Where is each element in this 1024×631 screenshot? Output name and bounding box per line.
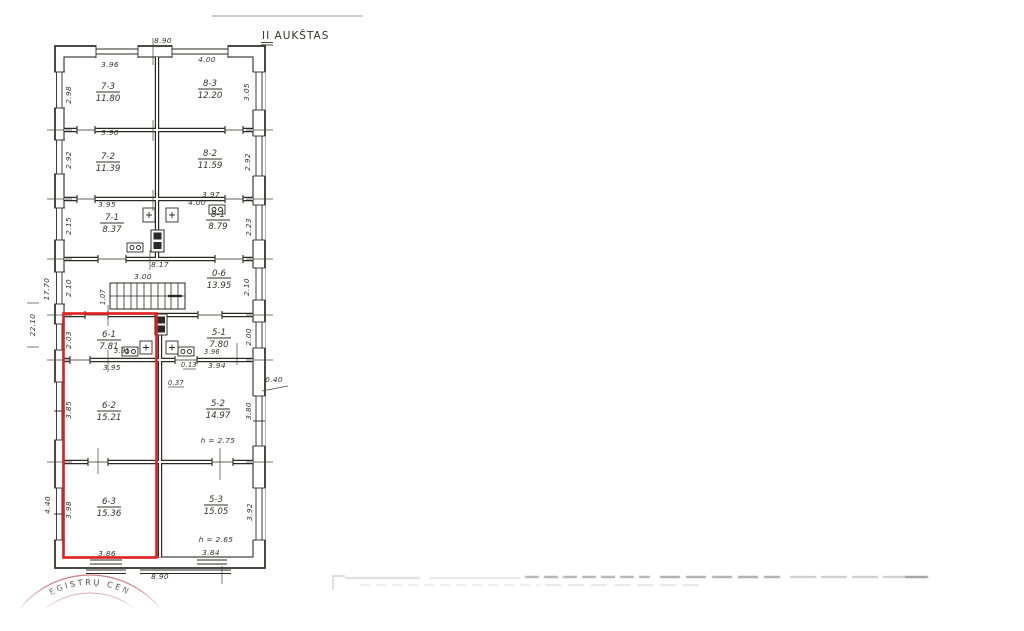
svg-text:2.98: 2.98 [64, 86, 73, 104]
room-labels: 7-311.80 8-312.20 7-211.39 8-211.59 7-18… [96, 79, 232, 519]
svg-text:3.96: 3.96 [101, 60, 119, 69]
svg-text:11.59: 11.59 [198, 161, 223, 171]
svg-text:15.36: 15.36 [97, 509, 122, 519]
room-label: 7-18.37 [100, 213, 124, 235]
room-label: 6-215.21 [97, 401, 122, 423]
svg-text:3.96: 3.96 [204, 348, 220, 356]
svg-text:4.40: 4.40 [43, 496, 52, 514]
svg-text:2.10: 2.10 [242, 278, 251, 296]
dim-bottom-width: 8.90 [151, 572, 169, 581]
interior-walls [64, 57, 253, 557]
svg-text:8.79: 8.79 [208, 222, 227, 232]
svg-text:5-2: 5-2 [211, 399, 225, 409]
svg-text:7-3: 7-3 [101, 82, 115, 92]
scanned-floor-plan-page: EGISTRŲ CEN [0, 0, 1024, 631]
dim-overall-left: 22.10 [28, 314, 37, 337]
ceiling-height-note: h = 2.75 [201, 436, 235, 445]
room-label: 7-311.80 [96, 82, 121, 104]
room-label: 8-18.79 [206, 210, 230, 232]
illegible-scan-text [333, 576, 928, 590]
svg-text:3.90: 3.90 [101, 128, 119, 137]
svg-text:13.95: 13.95 [207, 281, 232, 291]
svg-text:8-3: 8-3 [203, 79, 217, 89]
svg-text:11.80: 11.80 [96, 94, 121, 104]
room-label: 8-312.20 [198, 79, 223, 101]
dim-top-width: 8.90 [154, 36, 172, 45]
svg-text:2.00: 2.00 [244, 328, 253, 346]
floor-title: II AUKŠTAS [262, 29, 329, 42]
svg-text:2.92: 2.92 [243, 153, 252, 171]
svg-text:17.70: 17.70 [42, 278, 51, 301]
svg-text:2.03: 2.03 [64, 331, 73, 349]
svg-text:8-2: 8-2 [203, 149, 217, 159]
window-openings-right [253, 72, 266, 540]
svg-text:3.95: 3.95 [103, 363, 121, 372]
svg-text:12.20: 12.20 [198, 91, 223, 101]
registry-stamp: EGISTRŲ CEN [0, 575, 210, 631]
svg-text:6-2: 6-2 [102, 401, 116, 411]
ceiling-height-note: h = 2.65 [199, 535, 233, 544]
svg-text:8-1: 8-1 [211, 210, 225, 220]
svg-text:1.07: 1.07 [99, 289, 107, 305]
svg-text:4.00: 4.00 [198, 55, 216, 64]
svg-text:2.10: 2.10 [64, 279, 73, 297]
svg-text:7-1: 7-1 [105, 213, 119, 223]
svg-text:15.05: 15.05 [204, 507, 229, 517]
svg-text:3.84: 3.84 [202, 548, 220, 557]
svg-text:3.85: 3.85 [64, 401, 73, 419]
svg-text:8.17: 8.17 [151, 260, 169, 269]
room-label: 7-211.39 [96, 152, 121, 174]
drawing-title: II AUKŠTAS [261, 29, 329, 45]
svg-text:3.91: 3.91 [114, 347, 130, 355]
svg-text:3.95: 3.95 [98, 200, 116, 209]
staircase [110, 283, 185, 309]
room-label: 8-211.59 [198, 149, 223, 171]
svg-text:3.80: 3.80 [244, 402, 253, 420]
svg-text:6-1: 6-1 [102, 330, 116, 340]
svg-text:7-2: 7-2 [101, 152, 115, 162]
svg-text:3.98: 3.98 [64, 501, 73, 519]
svg-text:2.92: 2.92 [64, 151, 73, 169]
room-label: 5-17.80 [207, 328, 231, 350]
svg-text:5-3: 5-3 [209, 495, 223, 505]
room-label: 5-214.97 [206, 399, 231, 421]
room-label: 6-315.36 [97, 497, 122, 519]
svg-text:2.15: 2.15 [64, 217, 73, 235]
svg-text:0.13: 0.13 [181, 361, 197, 369]
svg-text:3.86: 3.86 [98, 549, 116, 558]
svg-text:3.00: 3.00 [134, 272, 152, 281]
svg-text:5-1: 5-1 [212, 328, 226, 338]
dim-right-offset: 0.40 [265, 375, 283, 384]
svg-text:8.37: 8.37 [102, 225, 122, 235]
svg-text:14.97: 14.97 [206, 411, 231, 421]
svg-text:3.05: 3.05 [242, 83, 251, 101]
svg-text:15.21: 15.21 [97, 413, 122, 423]
svg-text:4.00: 4.00 [188, 198, 206, 207]
svg-text:0-6: 0-6 [212, 269, 227, 279]
room-label: 0-613.95 [207, 269, 232, 291]
svg-text:2.23: 2.23 [244, 218, 253, 236]
svg-text:11.39: 11.39 [96, 164, 121, 174]
svg-text:3.92: 3.92 [245, 503, 254, 521]
svg-text:0.37: 0.37 [168, 379, 184, 387]
svg-text:6-3: 6-3 [102, 497, 116, 507]
floor-plan-drawing: EGISTRŲ CEN [0, 0, 1024, 631]
room-label: 5-315.05 [204, 495, 229, 517]
svg-text:3.94: 3.94 [208, 361, 226, 370]
